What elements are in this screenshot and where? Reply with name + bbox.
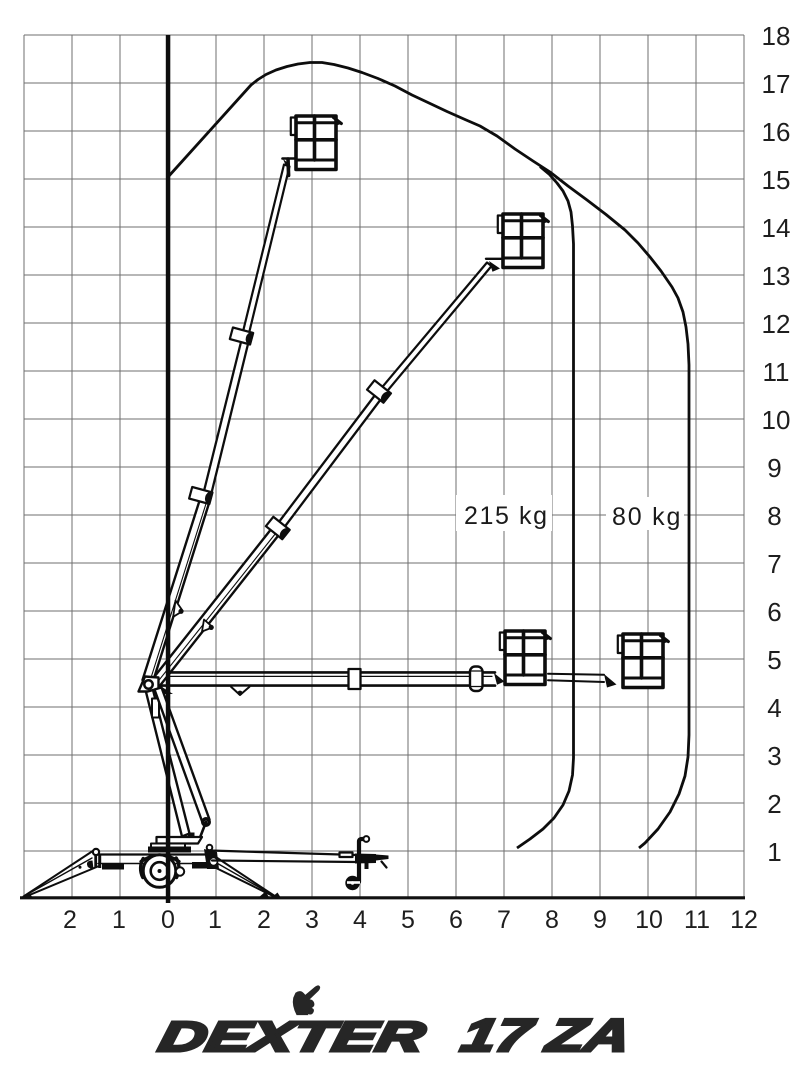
svg-text:14: 14 (762, 213, 791, 243)
svg-text:17 ZA: 17 ZA (457, 1009, 636, 1060)
svg-text:215 kg: 215 kg (464, 502, 549, 530)
svg-text:1: 1 (208, 906, 222, 934)
svg-text:4: 4 (353, 906, 367, 934)
svg-text:13: 13 (762, 261, 791, 291)
svg-text:80 kg: 80 kg (612, 503, 682, 531)
svg-text:16: 16 (762, 117, 791, 147)
svg-text:5: 5 (401, 906, 415, 934)
svg-text:12: 12 (762, 309, 791, 339)
svg-text:11: 11 (763, 357, 790, 387)
svg-text:5: 5 (767, 645, 781, 675)
svg-text:18: 18 (762, 21, 791, 51)
svg-text:DEXTER: DEXTER (155, 1013, 429, 1059)
svg-text:7: 7 (767, 549, 781, 579)
svg-text:3: 3 (305, 906, 319, 934)
svg-text:8: 8 (545, 906, 559, 934)
svg-text:3: 3 (767, 741, 781, 771)
svg-text:17: 17 (762, 69, 791, 99)
svg-text:1: 1 (112, 906, 126, 934)
svg-text:2: 2 (63, 906, 77, 934)
svg-text:0: 0 (161, 906, 175, 934)
svg-text:10: 10 (762, 405, 791, 435)
svg-text:4: 4 (767, 693, 781, 723)
svg-text:2: 2 (767, 789, 781, 819)
svg-text:1: 1 (767, 837, 781, 867)
svg-text:8: 8 (767, 501, 781, 531)
svg-text:6: 6 (767, 597, 781, 627)
svg-text:7: 7 (497, 906, 511, 934)
svg-text:9: 9 (767, 453, 781, 483)
svg-text:2: 2 (257, 906, 271, 934)
svg-text:6: 6 (449, 906, 463, 934)
svg-text:15: 15 (762, 165, 791, 195)
svg-text:12: 12 (730, 906, 758, 934)
svg-text:11: 11 (684, 906, 710, 934)
svg-text:10: 10 (635, 906, 663, 934)
svg-text:9: 9 (593, 906, 607, 934)
